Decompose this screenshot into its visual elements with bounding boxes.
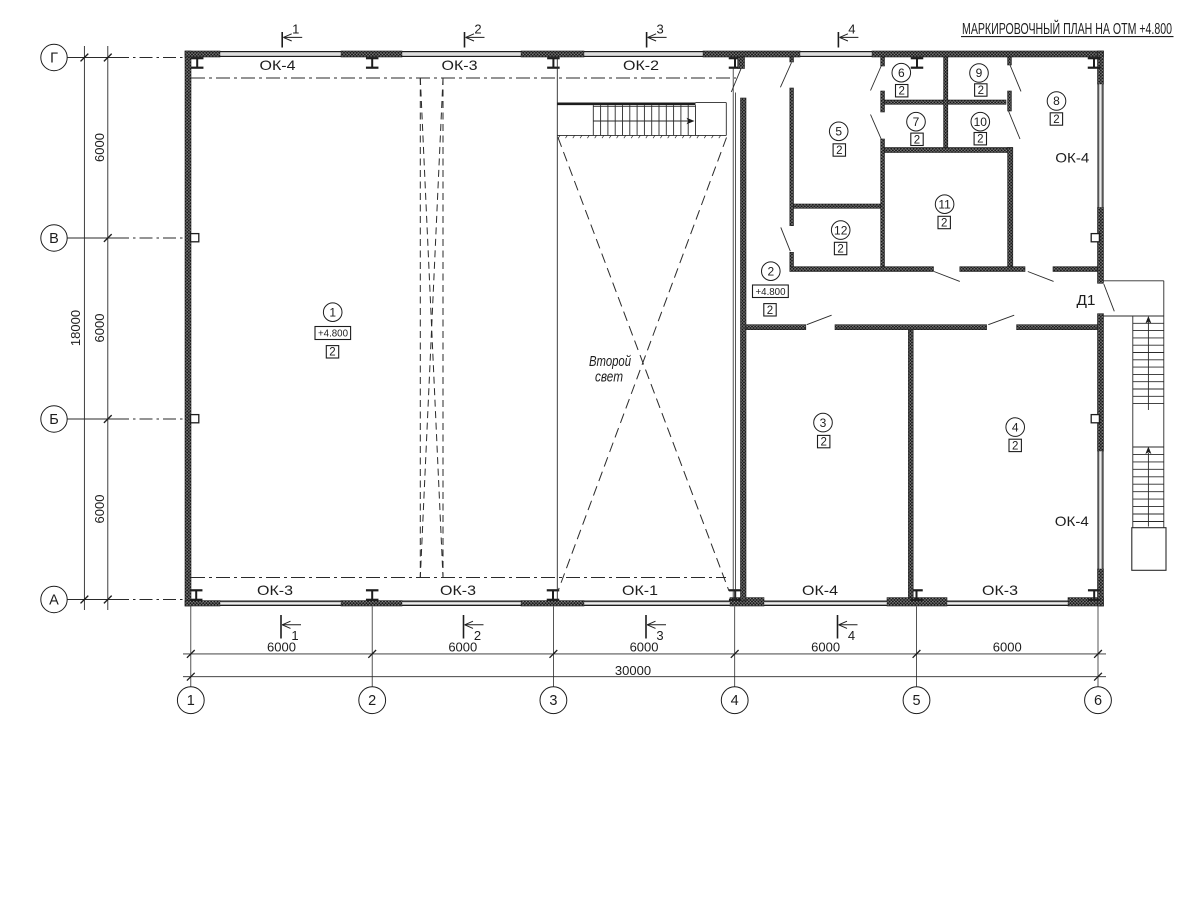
- svg-text:4: 4: [1012, 420, 1019, 434]
- svg-text:2: 2: [329, 346, 335, 358]
- svg-text:6000: 6000: [92, 495, 107, 524]
- svg-text:7: 7: [913, 115, 920, 129]
- svg-text:6000: 6000: [811, 639, 840, 654]
- svg-text:Второй: Второй: [589, 354, 631, 370]
- svg-text:3: 3: [656, 21, 663, 36]
- svg-text:Г: Г: [50, 51, 58, 67]
- svg-text:1: 1: [187, 693, 195, 709]
- svg-text:2: 2: [941, 218, 947, 230]
- svg-text:3: 3: [820, 416, 827, 430]
- svg-text:ОК-4: ОК-4: [1055, 513, 1089, 529]
- svg-text:6: 6: [898, 66, 905, 80]
- svg-text:11: 11: [938, 197, 951, 211]
- svg-text:1: 1: [292, 21, 299, 36]
- svg-text:4: 4: [848, 628, 855, 643]
- svg-text:10: 10: [974, 115, 988, 129]
- svg-text:2: 2: [368, 693, 376, 709]
- svg-text:2: 2: [837, 244, 843, 256]
- svg-text:2: 2: [820, 437, 826, 449]
- svg-text:ОК-1: ОК-1: [622, 582, 658, 598]
- svg-text:Д1: Д1: [1077, 293, 1096, 309]
- svg-text:2: 2: [914, 134, 920, 146]
- svg-text:2: 2: [474, 21, 481, 36]
- svg-text:2: 2: [836, 145, 842, 157]
- svg-text:1: 1: [329, 305, 336, 319]
- svg-text:5: 5: [912, 693, 920, 709]
- svg-text:12: 12: [834, 223, 848, 237]
- svg-text:А: А: [49, 593, 59, 609]
- svg-text:2: 2: [978, 85, 984, 97]
- svg-text:ОК-4: ОК-4: [802, 582, 838, 598]
- svg-text:4: 4: [731, 693, 739, 709]
- svg-text:2: 2: [767, 305, 773, 317]
- svg-text:ОК-2: ОК-2: [623, 57, 659, 73]
- svg-text:6000: 6000: [448, 639, 477, 654]
- svg-text:2: 2: [767, 264, 774, 278]
- svg-text:8: 8: [1053, 94, 1060, 108]
- svg-text:2: 2: [1012, 440, 1018, 452]
- svg-text:МАРКИРОВОЧНЫЙ ПЛАН НА ОТМ +4.8: МАРКИРОВОЧНЫЙ ПЛАН НА ОТМ +4.800: [962, 20, 1172, 38]
- svg-text:9: 9: [976, 66, 983, 80]
- svg-text:3: 3: [549, 693, 557, 709]
- svg-text:ОК-3: ОК-3: [442, 57, 478, 73]
- svg-text:18000: 18000: [68, 310, 83, 346]
- svg-text:+4.800: +4.800: [756, 286, 786, 298]
- svg-text:6: 6: [1094, 693, 1102, 709]
- svg-text:ОК-3: ОК-3: [257, 582, 293, 598]
- svg-text:Б: Б: [49, 412, 59, 428]
- svg-text:6000: 6000: [92, 133, 107, 162]
- svg-text:ОК-4: ОК-4: [260, 57, 296, 73]
- svg-text:6000: 6000: [267, 639, 296, 654]
- svg-text:ОК-4: ОК-4: [1055, 150, 1089, 166]
- svg-text:5: 5: [835, 125, 842, 139]
- svg-text:+4.800: +4.800: [318, 328, 348, 340]
- svg-text:ОК-3: ОК-3: [982, 582, 1018, 598]
- svg-text:6000: 6000: [630, 639, 659, 654]
- svg-text:6000: 6000: [993, 639, 1022, 654]
- svg-text:2: 2: [977, 134, 983, 146]
- svg-text:2: 2: [1053, 114, 1059, 126]
- svg-text:30000: 30000: [615, 663, 651, 678]
- svg-text:2: 2: [898, 86, 904, 98]
- svg-text:свет: свет: [595, 370, 623, 386]
- svg-text:4: 4: [848, 21, 855, 36]
- svg-text:6000: 6000: [92, 314, 107, 343]
- svg-text:В: В: [49, 231, 59, 247]
- svg-text:ОК-3: ОК-3: [440, 582, 476, 598]
